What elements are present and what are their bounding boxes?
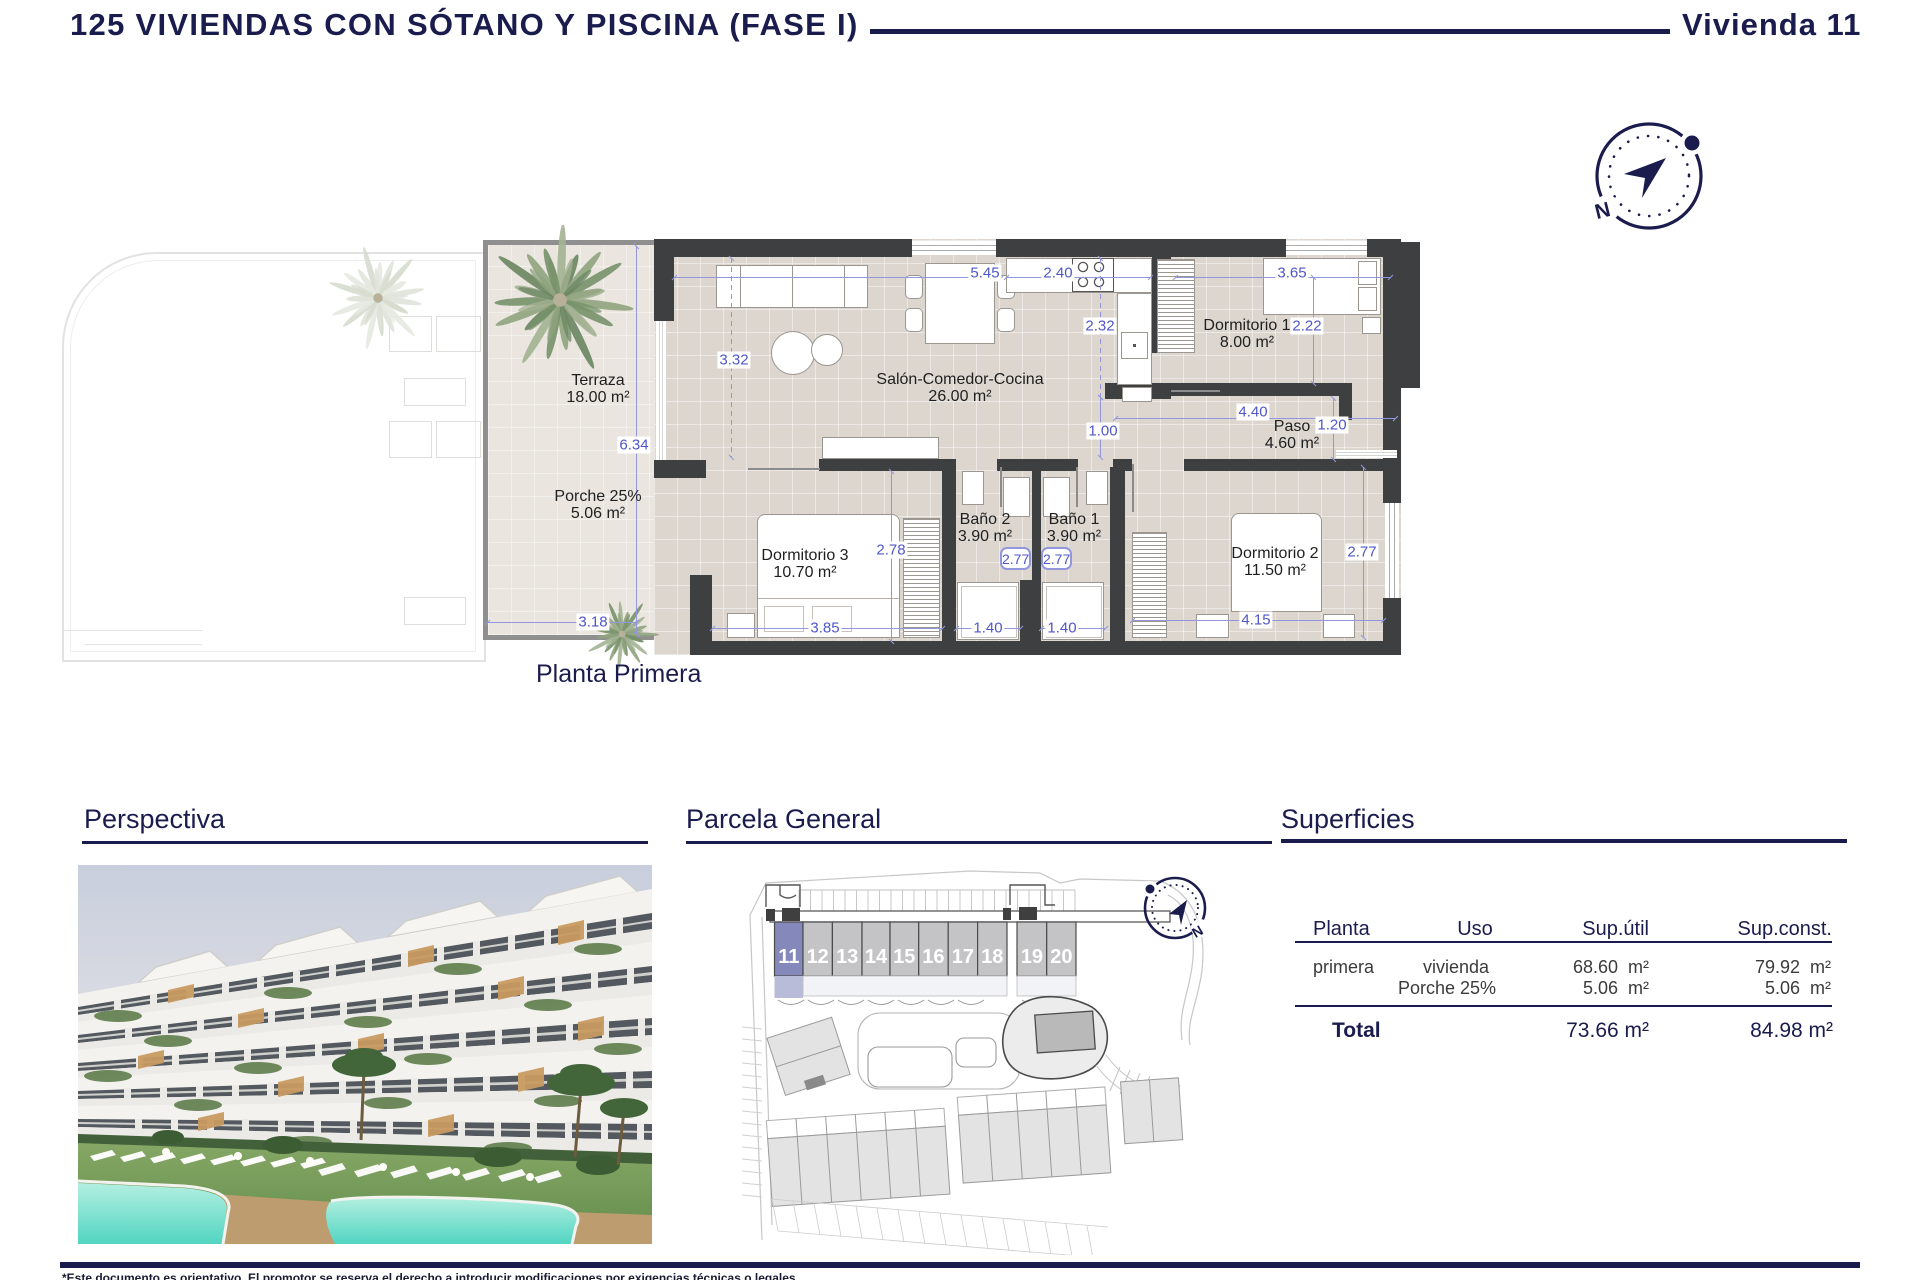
svg-text:18: 18 xyxy=(981,946,1003,968)
svg-text:14: 14 xyxy=(865,946,888,968)
svg-text:12: 12 xyxy=(807,946,829,968)
svg-text:16: 16 xyxy=(922,946,944,968)
svg-text:15: 15 xyxy=(893,946,915,968)
svg-text:19: 19 xyxy=(1021,946,1043,968)
svg-text:17: 17 xyxy=(952,946,974,968)
svg-text:13: 13 xyxy=(836,946,858,968)
svg-text:11: 11 xyxy=(778,946,799,968)
svg-text:20: 20 xyxy=(1050,946,1072,968)
